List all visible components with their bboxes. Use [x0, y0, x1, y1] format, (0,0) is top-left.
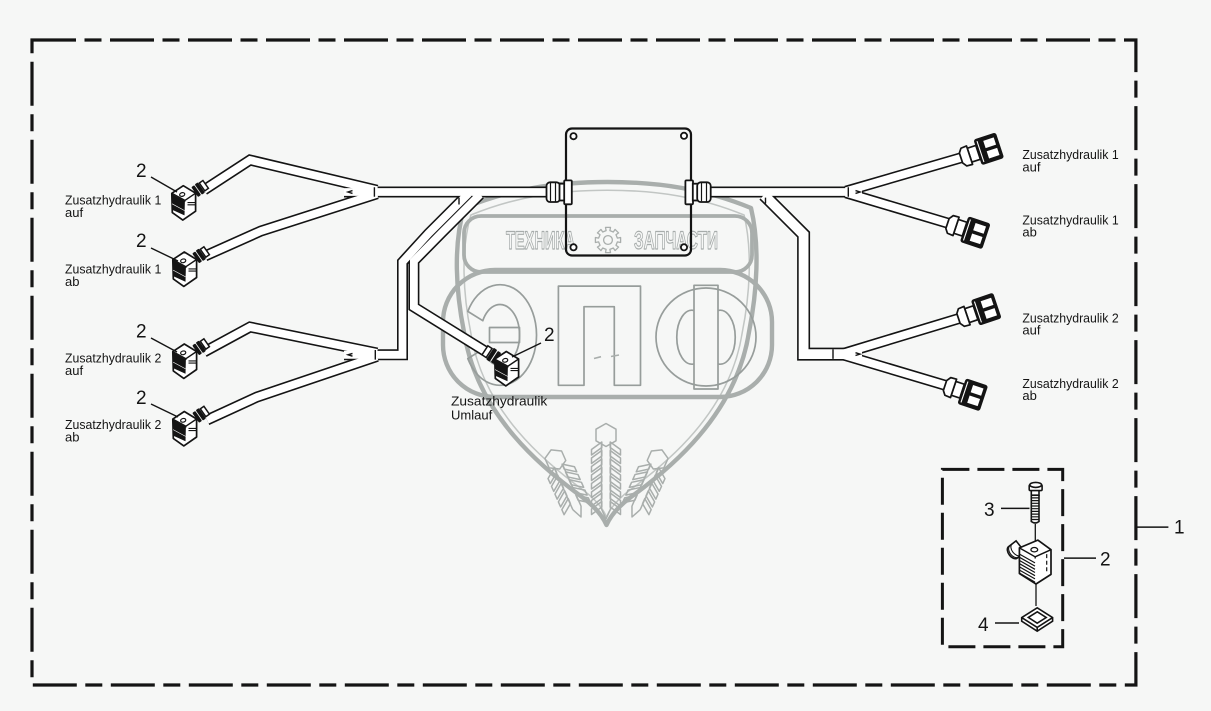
- svg-text:ab: ab: [1022, 388, 1036, 403]
- svg-text:1: 1: [1174, 518, 1185, 539]
- svg-text:auf: auf: [1022, 323, 1040, 338]
- svg-text:auf: auf: [65, 363, 83, 378]
- svg-text:2: 2: [1100, 550, 1111, 571]
- svg-text:ЗАПЧАСТИ: ЗАПЧАСТИ: [634, 227, 718, 255]
- svg-text:2: 2: [544, 325, 555, 346]
- svg-text:2: 2: [136, 322, 147, 343]
- svg-text:3: 3: [984, 500, 995, 521]
- svg-text:2: 2: [136, 388, 147, 409]
- svg-text:auf: auf: [1022, 160, 1040, 175]
- svg-text:Umlauf: Umlauf: [451, 408, 493, 423]
- svg-text:2: 2: [136, 231, 147, 252]
- svg-text:2: 2: [136, 161, 147, 182]
- svg-text:Zusatzhydraulik: Zusatzhydraulik: [451, 394, 548, 409]
- svg-text:ab: ab: [65, 274, 79, 289]
- svg-text:4: 4: [978, 615, 989, 636]
- svg-text:ab: ab: [65, 429, 79, 444]
- svg-text:ab: ab: [1022, 225, 1036, 240]
- svg-text:auf: auf: [65, 205, 83, 220]
- svg-text:ТЕХНИКА: ТЕХНИКА: [506, 227, 575, 255]
